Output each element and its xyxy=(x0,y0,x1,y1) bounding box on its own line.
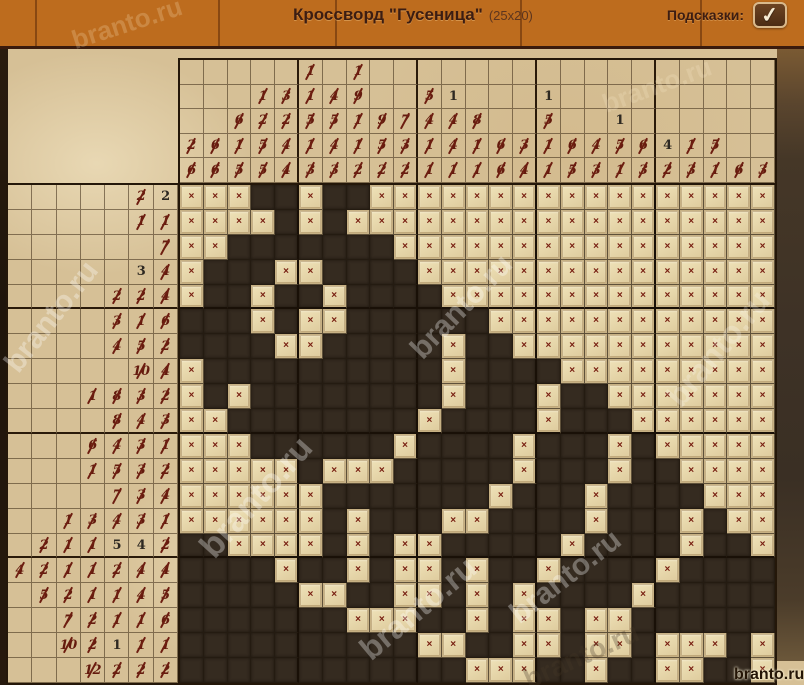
grid-cell-crossed[interactable]: × xyxy=(275,509,299,534)
grid-cell-filled[interactable] xyxy=(680,583,704,608)
grid-cell-crossed[interactable]: × xyxy=(656,434,680,459)
grid-cell-filled[interactable] xyxy=(656,509,680,534)
grid-cell-crossed[interactable]: × xyxy=(632,409,656,434)
grid-cell-filled[interactable] xyxy=(275,409,299,434)
grid-cell-filled[interactable] xyxy=(251,334,275,359)
grid-cell-crossed[interactable]: × xyxy=(513,658,537,683)
grid-cell-crossed[interactable]: × xyxy=(513,185,537,210)
grid-cell-crossed[interactable]: × xyxy=(180,434,204,459)
grid-cell-filled[interactable] xyxy=(585,384,609,409)
grid-cell-filled[interactable] xyxy=(727,534,751,559)
grid-cell-crossed[interactable]: × xyxy=(394,185,418,210)
grid-cell-crossed[interactable]: × xyxy=(394,558,418,583)
grid-cell-crossed[interactable]: × xyxy=(680,235,704,260)
grid-cell-filled[interactable] xyxy=(347,384,371,409)
grid-cell-filled[interactable] xyxy=(704,583,728,608)
grid-cell-filled[interactable] xyxy=(704,558,728,583)
grid-cell-filled[interactable] xyxy=(394,409,418,434)
grid-cell-crossed[interactable]: × xyxy=(632,384,656,409)
grid-cell-filled[interactable] xyxy=(323,633,347,658)
grid-cell-filled[interactable] xyxy=(299,658,323,683)
grid-cell-crossed[interactable]: × xyxy=(561,309,585,334)
grid-cell-crossed[interactable]: × xyxy=(751,409,775,434)
grid-cell-crossed[interactable]: × xyxy=(442,285,466,310)
grid-cell-filled[interactable] xyxy=(370,534,394,559)
grid-cell-filled[interactable] xyxy=(323,384,347,409)
grid-cell-crossed[interactable]: × xyxy=(299,534,323,559)
grid-cell-filled[interactable] xyxy=(275,309,299,334)
grid-cell-filled[interactable] xyxy=(299,409,323,434)
grid-cell-filled[interactable] xyxy=(275,434,299,459)
grid-cell-crossed[interactable]: × xyxy=(704,285,728,310)
grid-cell-filled[interactable] xyxy=(180,633,204,658)
grid-cell-crossed[interactable]: × xyxy=(489,260,513,285)
grid-cell-filled[interactable] xyxy=(513,558,537,583)
grid-cell-crossed[interactable]: × xyxy=(251,509,275,534)
grid-cell-crossed[interactable]: × xyxy=(537,334,561,359)
grid-cell-filled[interactable] xyxy=(489,509,513,534)
grid-cell-filled[interactable] xyxy=(299,558,323,583)
grid-cell-filled[interactable] xyxy=(347,583,371,608)
grid-cell-crossed[interactable]: × xyxy=(228,459,252,484)
grid-cell-crossed[interactable]: × xyxy=(656,658,680,683)
grid-cell-filled[interactable] xyxy=(442,484,466,509)
grid-cell-filled[interactable] xyxy=(323,658,347,683)
grid-cell-filled[interactable] xyxy=(394,633,418,658)
grid-cell-crossed[interactable]: × xyxy=(537,235,561,260)
grid-cell-filled[interactable] xyxy=(680,608,704,633)
grid-cell-filled[interactable] xyxy=(347,633,371,658)
grid-cell-filled[interactable] xyxy=(323,210,347,235)
grid-cell-crossed[interactable]: × xyxy=(466,285,490,310)
grid-cell-crossed[interactable]: × xyxy=(251,309,275,334)
grid-cell-filled[interactable] xyxy=(228,558,252,583)
grid-cell-crossed[interactable]: × xyxy=(251,534,275,559)
grid-cell-crossed[interactable]: × xyxy=(418,409,442,434)
grid-cell-crossed[interactable]: × xyxy=(727,235,751,260)
grid-cell-crossed[interactable]: × xyxy=(180,409,204,434)
grid-cell-filled[interactable] xyxy=(204,334,228,359)
grid-cell-filled[interactable] xyxy=(228,334,252,359)
grid-cell-crossed[interactable]: × xyxy=(727,409,751,434)
grid-cell-crossed[interactable]: × xyxy=(228,210,252,235)
grid-cell-filled[interactable] xyxy=(275,359,299,384)
grid-cell-crossed[interactable]: × xyxy=(561,334,585,359)
grid-cell-filled[interactable] xyxy=(442,309,466,334)
grid-cell-crossed[interactable]: × xyxy=(466,583,490,608)
grid-cell-crossed[interactable]: × xyxy=(608,210,632,235)
grid-cell-crossed[interactable]: × xyxy=(513,334,537,359)
grid-cell-crossed[interactable]: × xyxy=(204,434,228,459)
grid-cell-filled[interactable] xyxy=(251,633,275,658)
grid-cell-filled[interactable] xyxy=(656,459,680,484)
grid-cell-crossed[interactable]: × xyxy=(680,359,704,384)
grid-cell-crossed[interactable]: × xyxy=(680,534,704,559)
grid-cell-filled[interactable] xyxy=(466,534,490,559)
grid-cell-filled[interactable] xyxy=(394,334,418,359)
grid-cell-crossed[interactable]: × xyxy=(466,185,490,210)
grid-cell-filled[interactable] xyxy=(299,608,323,633)
grid-cell-filled[interactable] xyxy=(275,185,299,210)
grid-cell-filled[interactable] xyxy=(228,235,252,260)
grid-cell-crossed[interactable]: × xyxy=(632,583,656,608)
grid-cell-crossed[interactable]: × xyxy=(680,434,704,459)
grid-cell-filled[interactable] xyxy=(489,409,513,434)
grid-cell-filled[interactable] xyxy=(632,608,656,633)
grid-cell-filled[interactable] xyxy=(561,434,585,459)
grid-cell-crossed[interactable]: × xyxy=(323,459,347,484)
grid-cell-crossed[interactable]: × xyxy=(561,359,585,384)
grid-cell-filled[interactable] xyxy=(323,260,347,285)
grid-cell-crossed[interactable]: × xyxy=(394,235,418,260)
grid-cell-crossed[interactable]: × xyxy=(204,235,228,260)
grid-cell-crossed[interactable]: × xyxy=(180,235,204,260)
grid-cell-filled[interactable] xyxy=(347,409,371,434)
grid-cell-crossed[interactable]: × xyxy=(513,235,537,260)
grid-cell-crossed[interactable]: × xyxy=(323,583,347,608)
grid-cell-filled[interactable] xyxy=(608,484,632,509)
grid-cell-filled[interactable] xyxy=(228,409,252,434)
grid-cell-crossed[interactable]: × xyxy=(180,384,204,409)
grid-cell-crossed[interactable]: × xyxy=(513,309,537,334)
grid-cell-filled[interactable] xyxy=(251,235,275,260)
grid-cell-crossed[interactable]: × xyxy=(608,309,632,334)
grid-cell-crossed[interactable]: × xyxy=(585,309,609,334)
grid-cell-crossed[interactable]: × xyxy=(418,260,442,285)
grid-cell-crossed[interactable]: × xyxy=(632,334,656,359)
grid-cell-crossed[interactable]: × xyxy=(751,384,775,409)
grid-cell-crossed[interactable]: × xyxy=(751,235,775,260)
grid-cell-crossed[interactable]: × xyxy=(251,210,275,235)
grid-cell-crossed[interactable]: × xyxy=(537,260,561,285)
grid-cell-crossed[interactable]: × xyxy=(704,210,728,235)
grid-cell-filled[interactable] xyxy=(275,285,299,310)
grid-cell-filled[interactable] xyxy=(489,608,513,633)
grid-cell-crossed[interactable]: × xyxy=(585,633,609,658)
grid-cell-crossed[interactable]: × xyxy=(489,309,513,334)
grid-cell-crossed[interactable]: × xyxy=(704,334,728,359)
grid-cell-filled[interactable] xyxy=(537,459,561,484)
grid-cell-filled[interactable] xyxy=(466,359,490,384)
grid-cell-filled[interactable] xyxy=(204,558,228,583)
grid-cell-crossed[interactable]: × xyxy=(727,434,751,459)
grid-cell-crossed[interactable]: × xyxy=(680,309,704,334)
grid-cell-crossed[interactable]: × xyxy=(537,608,561,633)
grid-cell-filled[interactable] xyxy=(656,608,680,633)
grid-cell-filled[interactable] xyxy=(347,260,371,285)
grid-cell-filled[interactable] xyxy=(204,359,228,384)
grid-cell-crossed[interactable]: × xyxy=(704,434,728,459)
grid-cell-filled[interactable] xyxy=(275,633,299,658)
grid-cell-filled[interactable] xyxy=(228,658,252,683)
grid-cell-crossed[interactable]: × xyxy=(299,509,323,534)
grid-cell-filled[interactable] xyxy=(323,359,347,384)
grid-cell-crossed[interactable]: × xyxy=(513,459,537,484)
grid-cell-crossed[interactable]: × xyxy=(727,484,751,509)
grid-cell-filled[interactable] xyxy=(180,334,204,359)
grid-cell-crossed[interactable]: × xyxy=(585,185,609,210)
grid-cell-crossed[interactable]: × xyxy=(608,334,632,359)
grid-cell-filled[interactable] xyxy=(608,658,632,683)
grid-cell-filled[interactable] xyxy=(632,633,656,658)
grid-cell-filled[interactable] xyxy=(204,608,228,633)
grid-cell-crossed[interactable]: × xyxy=(561,260,585,285)
grid-cell-filled[interactable] xyxy=(228,583,252,608)
grid-cell-filled[interactable] xyxy=(251,185,275,210)
grid-cell-crossed[interactable]: × xyxy=(585,484,609,509)
grid-cell-filled[interactable] xyxy=(394,260,418,285)
grid-cell-filled[interactable] xyxy=(323,185,347,210)
grid-cell-filled[interactable] xyxy=(442,434,466,459)
grid-cell-crossed[interactable]: × xyxy=(656,633,680,658)
grid-cell-crossed[interactable]: × xyxy=(656,558,680,583)
grid-cell-crossed[interactable]: × xyxy=(537,185,561,210)
grid-cell-crossed[interactable]: × xyxy=(656,309,680,334)
grid-cell-crossed[interactable]: × xyxy=(251,484,275,509)
grid-cell-crossed[interactable]: × xyxy=(347,509,371,534)
grid-cell-crossed[interactable]: × xyxy=(513,285,537,310)
grid-cell-filled[interactable] xyxy=(561,558,585,583)
grid-cell-crossed[interactable]: × xyxy=(680,509,704,534)
grid-cell-crossed[interactable]: × xyxy=(466,558,490,583)
grid-cell-filled[interactable] xyxy=(561,633,585,658)
grid-cell-crossed[interactable]: × xyxy=(537,384,561,409)
grid-cell-filled[interactable] xyxy=(751,608,775,633)
grid-cell-crossed[interactable]: × xyxy=(656,235,680,260)
grid-cell-crossed[interactable]: × xyxy=(537,210,561,235)
grid-cell-crossed[interactable]: × xyxy=(418,235,442,260)
grid-cell-crossed[interactable]: × xyxy=(299,484,323,509)
grid-cell-crossed[interactable]: × xyxy=(442,633,466,658)
grid-cell-filled[interactable] xyxy=(561,658,585,683)
grid-cell-filled[interactable] xyxy=(466,309,490,334)
grid-cell-filled[interactable] xyxy=(727,608,751,633)
grid-cell-crossed[interactable]: × xyxy=(608,285,632,310)
grid-cell-crossed[interactable]: × xyxy=(489,658,513,683)
grid-cell-crossed[interactable]: × xyxy=(608,359,632,384)
grid-cell-crossed[interactable]: × xyxy=(704,409,728,434)
grid-cell-crossed[interactable]: × xyxy=(180,484,204,509)
grid-cell-filled[interactable] xyxy=(561,409,585,434)
grid-cell-filled[interactable] xyxy=(751,558,775,583)
grid-cell-filled[interactable] xyxy=(180,534,204,559)
grid-cell-crossed[interactable]: × xyxy=(656,409,680,434)
grid-cell-filled[interactable] xyxy=(442,409,466,434)
grid-cell-crossed[interactable]: × xyxy=(180,509,204,534)
grid-cell-crossed[interactable]: × xyxy=(442,509,466,534)
grid-cell-filled[interactable] xyxy=(442,608,466,633)
grid-cell-crossed[interactable]: × xyxy=(418,185,442,210)
grid-cell-crossed[interactable]: × xyxy=(727,210,751,235)
grid-cell-crossed[interactable]: × xyxy=(251,459,275,484)
grid-cell-filled[interactable] xyxy=(751,583,775,608)
grid-cell-filled[interactable] xyxy=(180,658,204,683)
grid-cell-crossed[interactable]: × xyxy=(751,309,775,334)
grid-cell-filled[interactable] xyxy=(204,260,228,285)
grid-cell-filled[interactable] xyxy=(370,484,394,509)
grid-cell-filled[interactable] xyxy=(561,608,585,633)
grid-cell-crossed[interactable]: × xyxy=(585,359,609,384)
grid-cell-filled[interactable] xyxy=(275,583,299,608)
grid-cell-filled[interactable] xyxy=(347,359,371,384)
grid-cell-filled[interactable] xyxy=(323,334,347,359)
grid-cell-filled[interactable] xyxy=(370,359,394,384)
grid-cell-crossed[interactable]: × xyxy=(442,384,466,409)
grid-cell-crossed[interactable]: × xyxy=(204,459,228,484)
grid-cell-crossed[interactable]: × xyxy=(513,583,537,608)
grid-cell-crossed[interactable]: × xyxy=(561,534,585,559)
grid-cell-filled[interactable] xyxy=(727,583,751,608)
grid-cell-filled[interactable] xyxy=(251,409,275,434)
grid-cell-crossed[interactable]: × xyxy=(418,558,442,583)
grid-cell-crossed[interactable]: × xyxy=(537,409,561,434)
grid-cell-crossed[interactable]: × xyxy=(751,260,775,285)
grid-cell-crossed[interactable]: × xyxy=(727,384,751,409)
grid-cell-crossed[interactable]: × xyxy=(585,235,609,260)
grid-cell-crossed[interactable]: × xyxy=(323,285,347,310)
grid-cell-crossed[interactable]: × xyxy=(180,185,204,210)
grid-cell-filled[interactable] xyxy=(489,583,513,608)
grid-cell-crossed[interactable]: × xyxy=(561,185,585,210)
grid-cell-filled[interactable] xyxy=(466,633,490,658)
grid-cell-crossed[interactable]: × xyxy=(608,384,632,409)
grid-cell-crossed[interactable]: × xyxy=(204,509,228,534)
grid-cell-filled[interactable] xyxy=(204,384,228,409)
grid-cell-crossed[interactable]: × xyxy=(299,260,323,285)
grid-cell-filled[interactable] xyxy=(347,309,371,334)
grid-cell-crossed[interactable]: × xyxy=(751,509,775,534)
grid-cell-filled[interactable] xyxy=(561,459,585,484)
grid-cell-filled[interactable] xyxy=(370,285,394,310)
grid-cell-crossed[interactable]: × xyxy=(585,260,609,285)
grid-cell-crossed[interactable]: × xyxy=(513,210,537,235)
grid-cell-crossed[interactable]: × xyxy=(608,459,632,484)
grid-cell-crossed[interactable]: × xyxy=(727,459,751,484)
grid-cell-filled[interactable] xyxy=(370,633,394,658)
grid-cell-crossed[interactable]: × xyxy=(727,185,751,210)
grid-cell-filled[interactable] xyxy=(704,509,728,534)
grid-cell-crossed[interactable]: × xyxy=(704,459,728,484)
grid-cell-crossed[interactable]: × xyxy=(442,334,466,359)
grid-cell-filled[interactable] xyxy=(418,359,442,384)
grid-cell-crossed[interactable]: × xyxy=(608,434,632,459)
grid-cell-crossed[interactable]: × xyxy=(608,235,632,260)
grid-cell-crossed[interactable]: × xyxy=(466,608,490,633)
grid-cell-crossed[interactable]: × xyxy=(632,285,656,310)
grid-cell-filled[interactable] xyxy=(394,384,418,409)
grid-cell-filled[interactable] xyxy=(442,534,466,559)
grid-cell-crossed[interactable]: × xyxy=(347,608,371,633)
grid-cell-filled[interactable] xyxy=(370,583,394,608)
grid-cell-crossed[interactable]: × xyxy=(370,608,394,633)
grid-cell-filled[interactable] xyxy=(513,509,537,534)
grid-cell-filled[interactable] xyxy=(228,608,252,633)
grid-cell-filled[interactable] xyxy=(418,309,442,334)
grid-cell-filled[interactable] xyxy=(204,633,228,658)
grid-cell-crossed[interactable]: × xyxy=(585,285,609,310)
grid-cell-crossed[interactable]: × xyxy=(704,633,728,658)
grid-cell-filled[interactable] xyxy=(204,658,228,683)
grid-cell-filled[interactable] xyxy=(299,459,323,484)
grid-cell-crossed[interactable]: × xyxy=(418,633,442,658)
grid-cell-crossed[interactable]: × xyxy=(727,509,751,534)
grid-cell-crossed[interactable]: × xyxy=(347,534,371,559)
grid-cell-filled[interactable] xyxy=(180,583,204,608)
grid-cell-filled[interactable] xyxy=(228,260,252,285)
grid-cell-filled[interactable] xyxy=(323,409,347,434)
grid-cell-crossed[interactable]: × xyxy=(727,334,751,359)
grid-cell-crossed[interactable]: × xyxy=(442,260,466,285)
grid-cell-crossed[interactable]: × xyxy=(347,558,371,583)
grid-cell-crossed[interactable]: × xyxy=(727,359,751,384)
grid-cell-filled[interactable] xyxy=(418,509,442,534)
grid-cell-filled[interactable] xyxy=(370,260,394,285)
grid-cell-crossed[interactable]: × xyxy=(489,235,513,260)
grid-cell-filled[interactable] xyxy=(489,334,513,359)
grid-cell-filled[interactable] xyxy=(608,509,632,534)
grid-cell-filled[interactable] xyxy=(632,658,656,683)
grid-cell-filled[interactable] xyxy=(394,309,418,334)
grid-cell-crossed[interactable]: × xyxy=(489,285,513,310)
grid-cell-filled[interactable] xyxy=(466,484,490,509)
grid-cell-filled[interactable] xyxy=(347,235,371,260)
grid-cell-crossed[interactable]: × xyxy=(394,210,418,235)
grid-cell-filled[interactable] xyxy=(489,359,513,384)
grid-cell-filled[interactable] xyxy=(228,359,252,384)
grid-cell-filled[interactable] xyxy=(513,384,537,409)
grid-cell-crossed[interactable]: × xyxy=(585,509,609,534)
grid-cell-filled[interactable] xyxy=(275,210,299,235)
grid-cell-crossed[interactable]: × xyxy=(442,235,466,260)
grid-cell-filled[interactable] xyxy=(561,509,585,534)
grid-cell-filled[interactable] xyxy=(704,658,728,683)
grid-cell-crossed[interactable]: × xyxy=(704,260,728,285)
grid-cell-crossed[interactable]: × xyxy=(632,309,656,334)
grid-cell-crossed[interactable]: × xyxy=(561,285,585,310)
grid-cell-filled[interactable] xyxy=(632,558,656,583)
grid-cell-filled[interactable] xyxy=(347,484,371,509)
grid-cell-filled[interactable] xyxy=(180,608,204,633)
grid-cell-crossed[interactable]: × xyxy=(751,534,775,559)
grid-cell-crossed[interactable]: × xyxy=(704,309,728,334)
grid-cell-crossed[interactable]: × xyxy=(727,285,751,310)
grid-cell-filled[interactable] xyxy=(585,583,609,608)
grid-cell-filled[interactable] xyxy=(632,459,656,484)
grid-cell-filled[interactable] xyxy=(608,558,632,583)
grid-cell-crossed[interactable]: × xyxy=(751,185,775,210)
grid-cell-filled[interactable] xyxy=(323,534,347,559)
grid-cell-filled[interactable] xyxy=(394,459,418,484)
grid-cell-crossed[interactable]: × xyxy=(585,658,609,683)
grid-cell-crossed[interactable]: × xyxy=(442,210,466,235)
grid-cell-crossed[interactable]: × xyxy=(513,633,537,658)
grid-cell-crossed[interactable]: × xyxy=(680,384,704,409)
grid-cell-filled[interactable] xyxy=(204,534,228,559)
grid-cell-crossed[interactable]: × xyxy=(680,334,704,359)
grid-cell-crossed[interactable]: × xyxy=(466,235,490,260)
grid-cell-crossed[interactable]: × xyxy=(751,285,775,310)
grid-cell-crossed[interactable]: × xyxy=(275,334,299,359)
grid-cell-filled[interactable] xyxy=(418,384,442,409)
grid-cell-crossed[interactable]: × xyxy=(442,185,466,210)
grid-cell-crossed[interactable]: × xyxy=(585,608,609,633)
grid-cell-filled[interactable] xyxy=(608,409,632,434)
grid-cell-crossed[interactable]: × xyxy=(656,260,680,285)
grid-cell-filled[interactable] xyxy=(513,359,537,384)
grid-cell-filled[interactable] xyxy=(275,608,299,633)
grid-cell-filled[interactable] xyxy=(632,434,656,459)
grid-cell-crossed[interactable]: × xyxy=(704,185,728,210)
